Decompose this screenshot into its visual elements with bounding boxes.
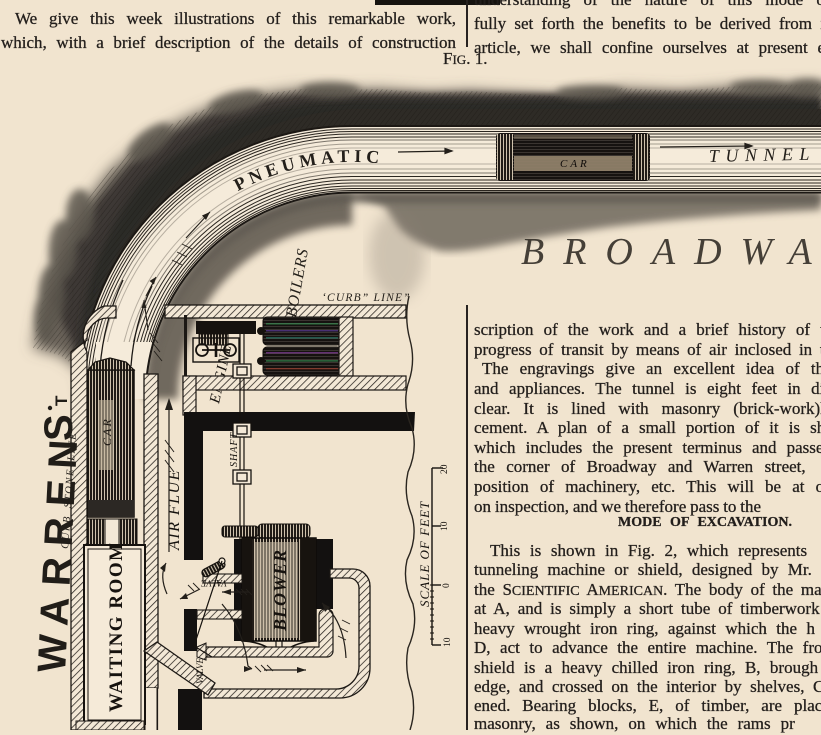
svg-text:10: 10 [440,521,450,531]
svg-text:CAR: CAR [560,158,590,170]
svg-text:20: 20 [440,464,450,474]
svg-text:BLOWER: BLOWER [270,549,290,632]
svg-text:BROADWA: BROADWA [521,231,821,273]
svg-text:VALVE: VALVE [201,578,227,588]
svg-text:0: 0 [442,583,452,588]
svg-text:SHAFT: SHAFT [229,432,240,467]
svg-text:CAR: CAR [100,417,114,446]
svg-text:‘CURB” LINE”: ‘CURB” LINE” [322,292,411,304]
svg-text:SCALE OF FEET: SCALE OF FEET [417,501,432,607]
svg-text:T: T [52,395,71,406]
svg-text:VALVE: VALVE [195,658,205,684]
svg-text:10: 10 [443,637,453,647]
svg-text:WAITING ROOM: WAITING ROOM [106,541,127,712]
svg-text:TUNNEL: TUNNEL [709,144,816,166]
svg-text:ENGINE: ENGINE [207,343,235,406]
